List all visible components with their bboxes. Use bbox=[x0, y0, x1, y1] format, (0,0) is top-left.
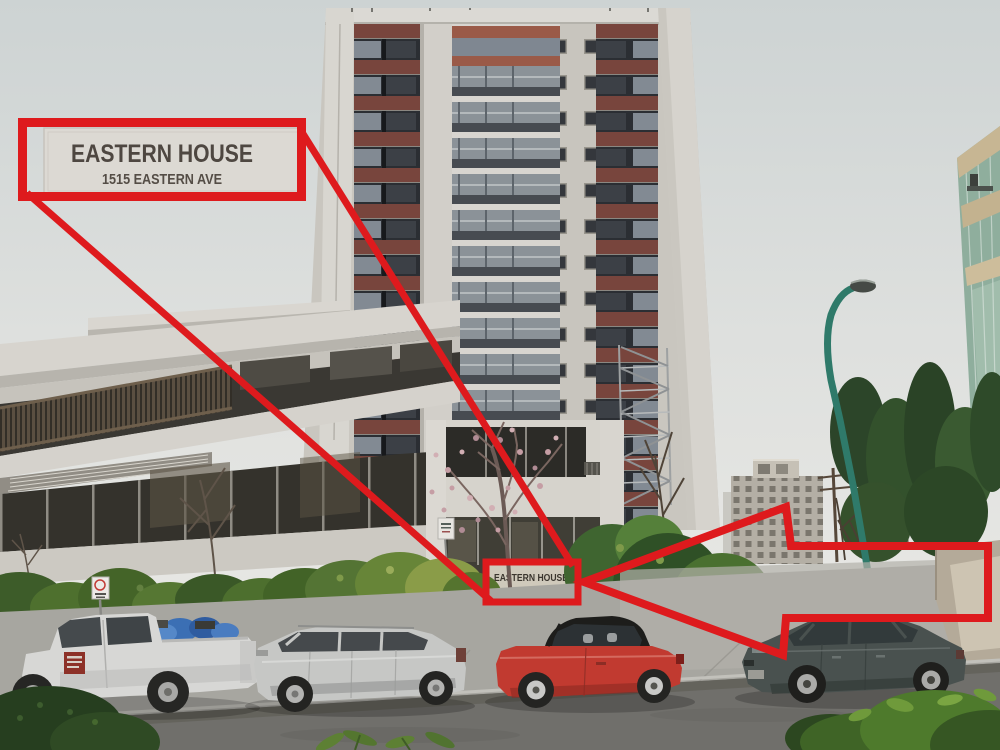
main-sign-subtitle: 1515 EASTERN AVE bbox=[102, 171, 222, 188]
main-sign: EASTERN HOUSE 1515 EASTERN AVE bbox=[44, 128, 302, 195]
silver-wagon bbox=[245, 626, 475, 717]
entrance-sign-title: EASTERN HOUSE bbox=[494, 573, 568, 584]
main-sign-title: EASTERN HOUSE bbox=[71, 140, 253, 168]
photo-eastern-house: EASTERN HOUSE 1515 EASTERN AVE bbox=[0, 0, 1000, 750]
